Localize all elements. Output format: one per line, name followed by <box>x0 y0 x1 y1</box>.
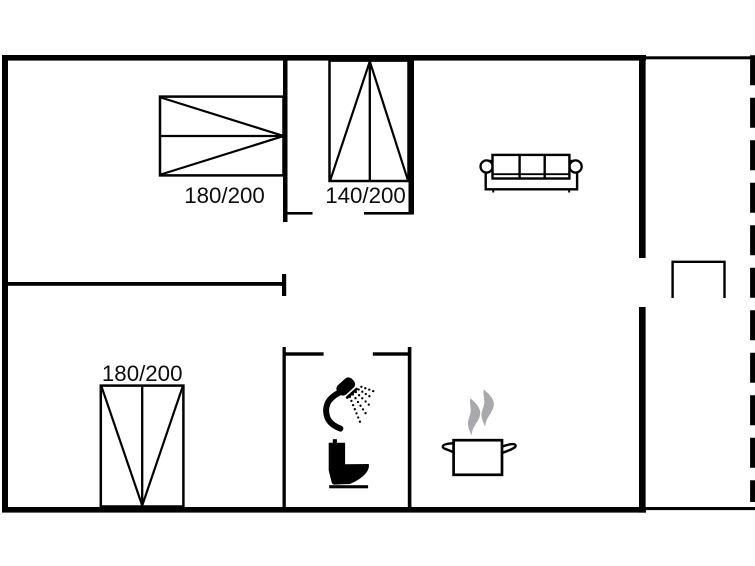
svg-text:180/200: 180/200 <box>102 361 183 386</box>
svg-text:140/200: 140/200 <box>325 183 406 208</box>
svg-text:180/200: 180/200 <box>184 183 265 208</box>
